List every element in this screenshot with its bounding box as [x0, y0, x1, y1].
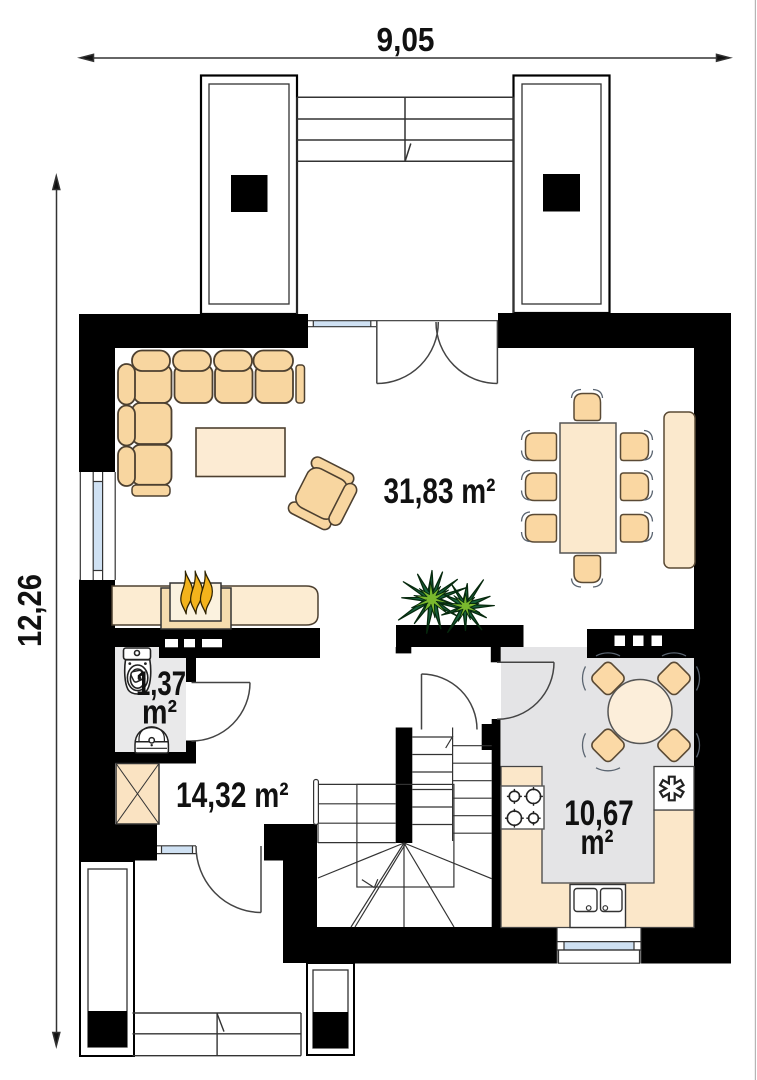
svg-text:31,83 m²: 31,83 m² [384, 472, 496, 511]
svg-text:9,05: 9,05 [377, 21, 435, 58]
svg-text:m²: m² [581, 823, 614, 862]
svg-text:14,32 m²: 14,32 m² [176, 776, 289, 815]
svg-text:m²: m² [142, 694, 177, 732]
svg-text:12,26: 12,26 [11, 574, 48, 647]
